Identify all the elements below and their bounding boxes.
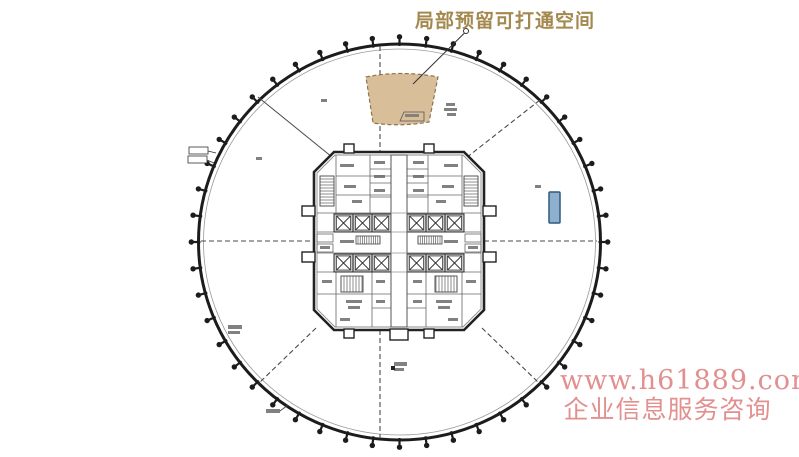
dimension-tags [188, 147, 216, 163]
core-central-corridor [391, 155, 407, 327]
floor-plan-page: 局部预留可打通空间 www.h61889.com 企业信息服务咨询 [0, 0, 799, 457]
watermark-url: www.h61889.com [560, 366, 775, 396]
leader-line [413, 33, 465, 84]
vent-grille [356, 236, 380, 244]
centerline-diagonal-topright [466, 100, 540, 158]
watermark: www.h61889.com 企业信息服务咨询 [560, 366, 775, 424]
centerline-diagonal-bottomright [482, 328, 540, 384]
core-plan [302, 144, 496, 340]
reserved-area-wedge [366, 74, 438, 125]
blue-marker [549, 192, 560, 223]
radial-line-topleft [258, 97, 332, 157]
watermark-caption: 企业信息服务咨询 [560, 396, 775, 424]
annotation-leader-line [413, 29, 469, 85]
reserved-area-annotation: 局部预留可打通空间 [415, 6, 615, 33]
stair [341, 276, 363, 292]
centerline-diagonal-bottomleft [258, 328, 316, 384]
stair [320, 176, 334, 206]
reserved-area-label-smudge [405, 114, 419, 117]
